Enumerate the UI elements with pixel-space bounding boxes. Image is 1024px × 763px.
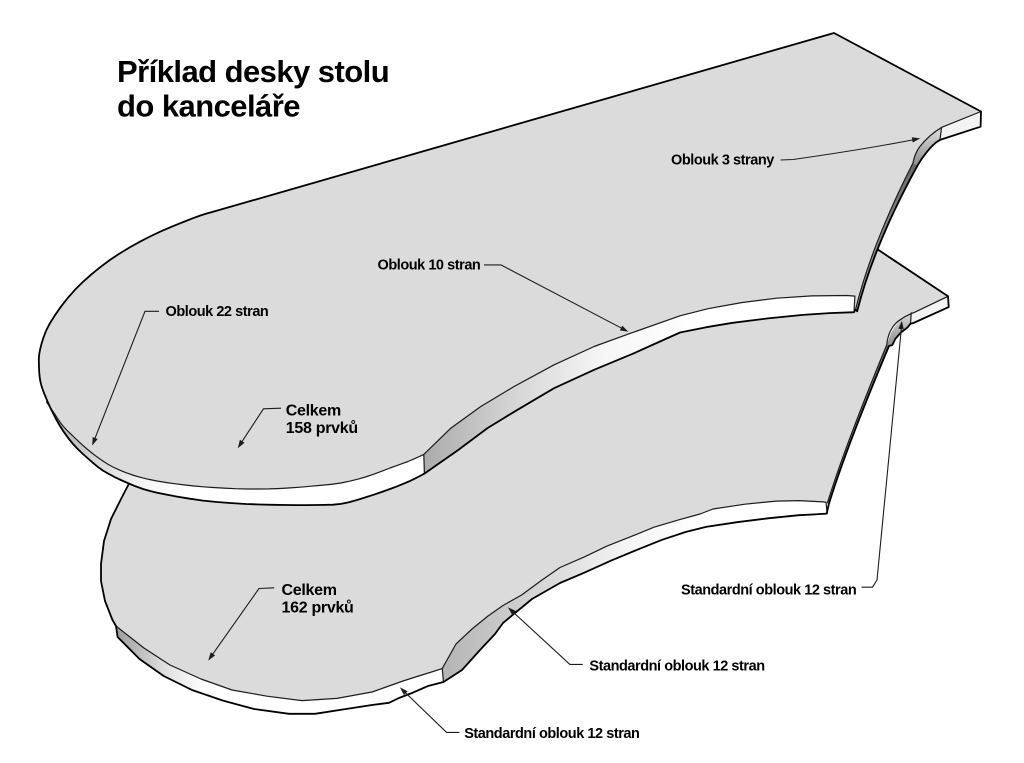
svg-text:Oblouk 10 stran: Oblouk 10 stran	[378, 258, 481, 274]
svg-text:Oblouk 3 strany: Oblouk 3 strany	[671, 152, 774, 168]
svg-text:Standardní oblouk 12 stran: Standardní oblouk 12 stran	[681, 582, 856, 598]
svg-text:162 prvků: 162 prvků	[282, 599, 354, 616]
svg-text:Standardní oblouk 12 stran: Standardní oblouk 12 stran	[464, 726, 639, 742]
svg-text:Celkem: Celkem	[282, 582, 337, 599]
svg-text:158 prvků: 158 prvků	[286, 420, 358, 437]
svg-text:Celkem: Celkem	[286, 403, 341, 420]
svg-text:Oblouk 22 stran: Oblouk 22 stran	[166, 304, 269, 320]
svg-text:do kanceláře: do kanceláře	[117, 89, 300, 124]
svg-text:Příklad desky stolu: Příklad desky stolu	[117, 54, 389, 89]
svg-text:Standardní oblouk 12 stran: Standardní oblouk 12 stran	[589, 658, 764, 674]
